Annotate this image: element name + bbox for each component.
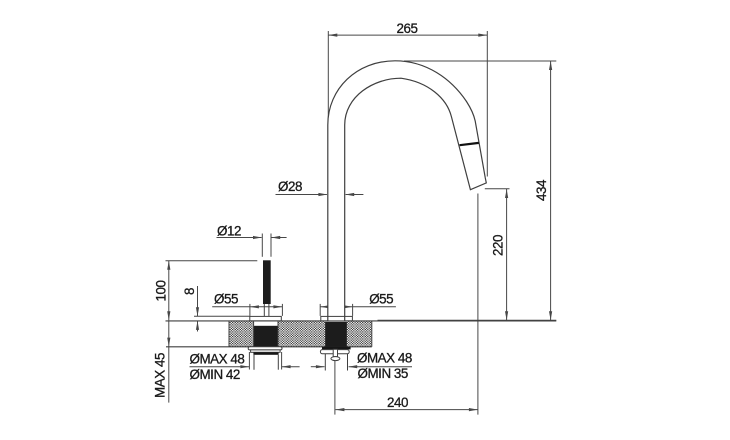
- svg-text:265: 265: [397, 21, 418, 36]
- svg-text:ØMIN 42: ØMIN 42: [190, 367, 240, 382]
- svg-text:Ø55: Ø55: [369, 292, 393, 307]
- svg-text:Ø55: Ø55: [214, 292, 238, 307]
- svg-text:100: 100: [154, 281, 169, 302]
- svg-text:Ø12: Ø12: [217, 224, 241, 239]
- svg-text:240: 240: [387, 395, 408, 410]
- svg-text:MAX 45: MAX 45: [153, 353, 168, 398]
- svg-text:Ø28: Ø28: [278, 179, 302, 194]
- svg-text:ØMAX 48: ØMAX 48: [357, 351, 412, 366]
- svg-text:220: 220: [490, 235, 505, 256]
- svg-text:434: 434: [534, 179, 549, 201]
- svg-text:8: 8: [182, 288, 197, 295]
- svg-text:ØMIN 35: ØMIN 35: [358, 366, 408, 381]
- svg-text:ØMAX 48: ØMAX 48: [190, 352, 245, 367]
